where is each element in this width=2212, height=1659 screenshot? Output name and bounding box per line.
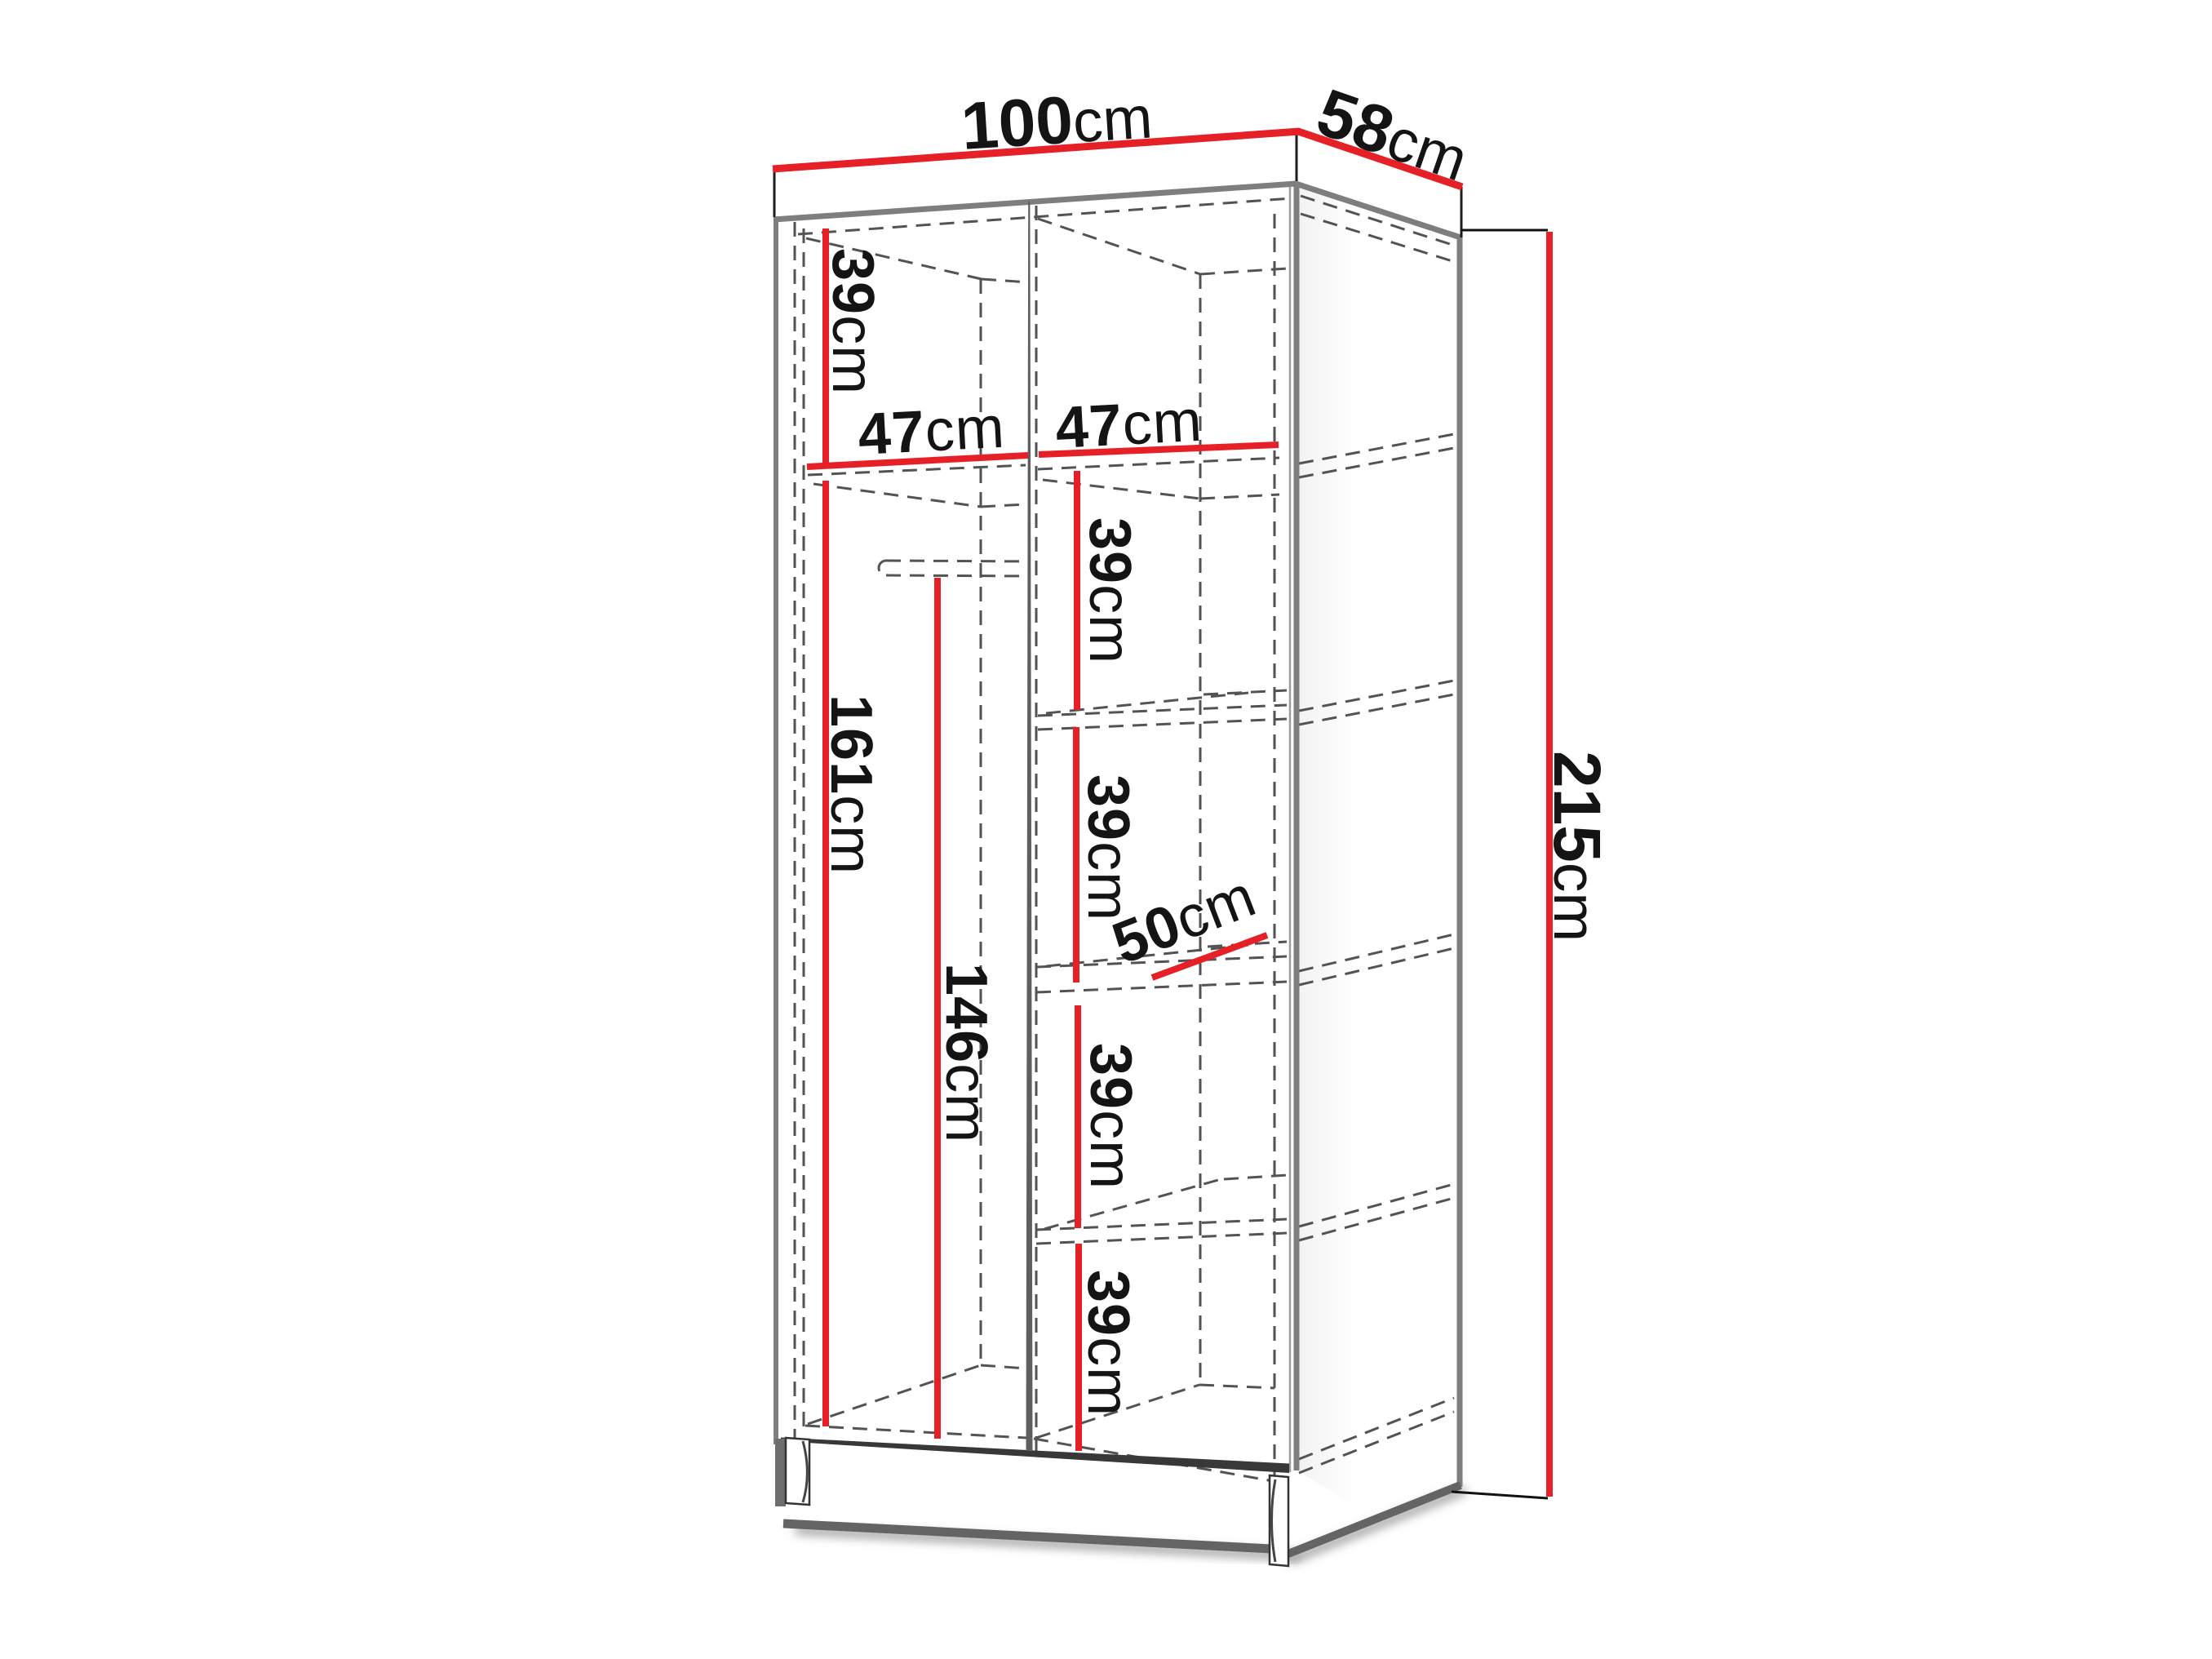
svg-text:161cm: 161cm [818,694,884,875]
svg-text:100cm: 100cm [959,78,1154,164]
svg-text:39cm: 39cm [1075,774,1141,921]
svg-text:47cm: 47cm [857,395,1007,468]
svg-text:39cm: 39cm [1078,1043,1143,1190]
svg-text:39cm: 39cm [1075,1270,1141,1417]
svg-text:39cm: 39cm [820,248,885,395]
svg-text:39cm: 39cm [1077,517,1142,664]
svg-text:215cm: 215cm [1540,751,1614,942]
svg-text:146cm: 146cm [933,963,999,1143]
svg-text:47cm: 47cm [1054,388,1204,461]
